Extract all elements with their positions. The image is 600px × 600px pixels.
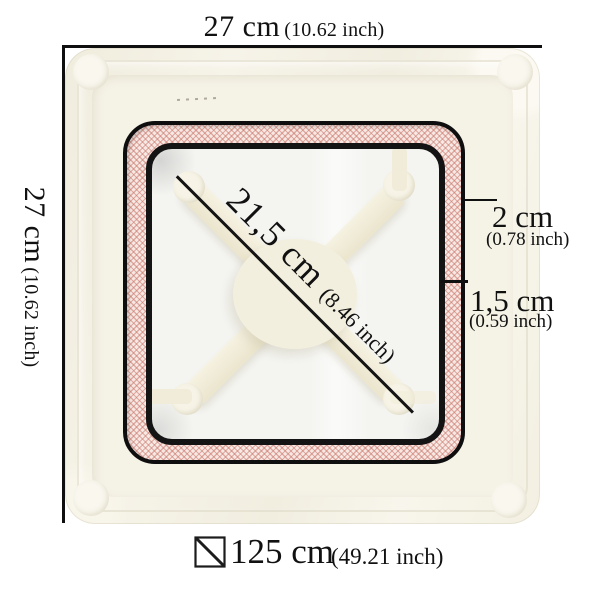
square-diagonal-icon [194, 536, 226, 568]
tick-line-frame-thickness [441, 280, 468, 283]
cross-brace-tab [148, 389, 192, 404]
tray-corner-boss [491, 482, 527, 518]
gasket-width-imperial: (0.78 inch) [486, 229, 569, 251]
dimension-label-left: 27 cm (10.62 inch) [13, 127, 55, 427]
tray-corner-boss [497, 54, 533, 90]
top-imperial-value: (10.62 inch) [284, 19, 384, 41]
tray-corner-boss [73, 54, 109, 90]
top-metric-value: 27 cm [204, 10, 281, 43]
dimension-label-top: 27 cm (10.62 inch) [52, 10, 536, 44]
perimeter-imperial: (49.21 inch) [331, 544, 443, 570]
perimeter-metric: 125 cm [230, 532, 334, 572]
left-metric-value: 27 cm [18, 187, 51, 264]
product-dimension-diagram: 27 cm (10.62 inch) 27 cm (10.62 inch) 21… [0, 0, 600, 600]
frame-thickness-imperial: (0.59 inch) [469, 311, 552, 333]
cross-brace-tab [392, 147, 407, 191]
tray-corner-boss [73, 480, 109, 516]
left-imperial-value: (10.62 inch) [20, 267, 42, 367]
